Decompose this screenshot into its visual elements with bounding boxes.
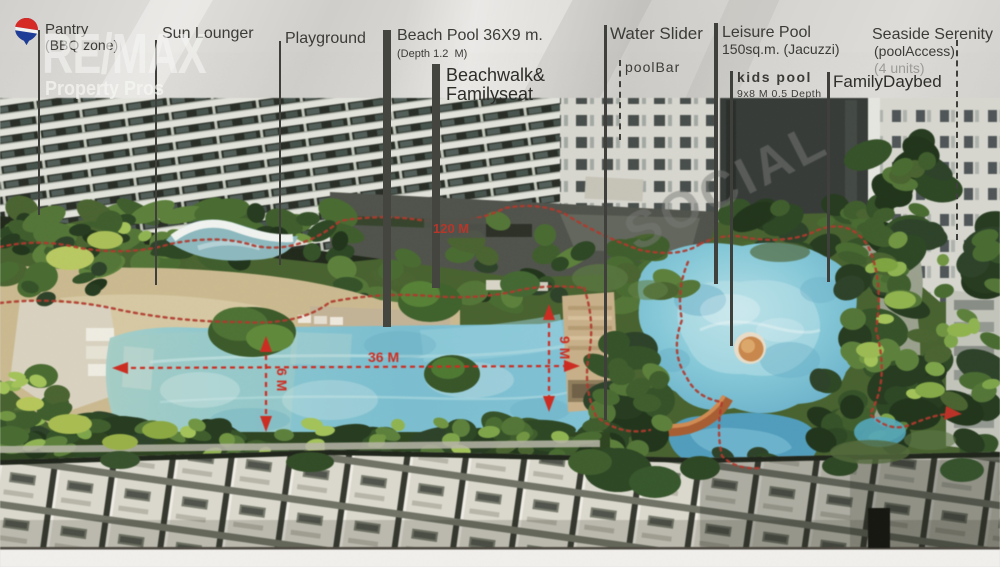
svg-text:9 M: 9 M — [557, 336, 573, 359]
svg-text:36 M: 36 M — [368, 349, 399, 365]
svg-text:6 M: 6 M — [274, 368, 290, 391]
